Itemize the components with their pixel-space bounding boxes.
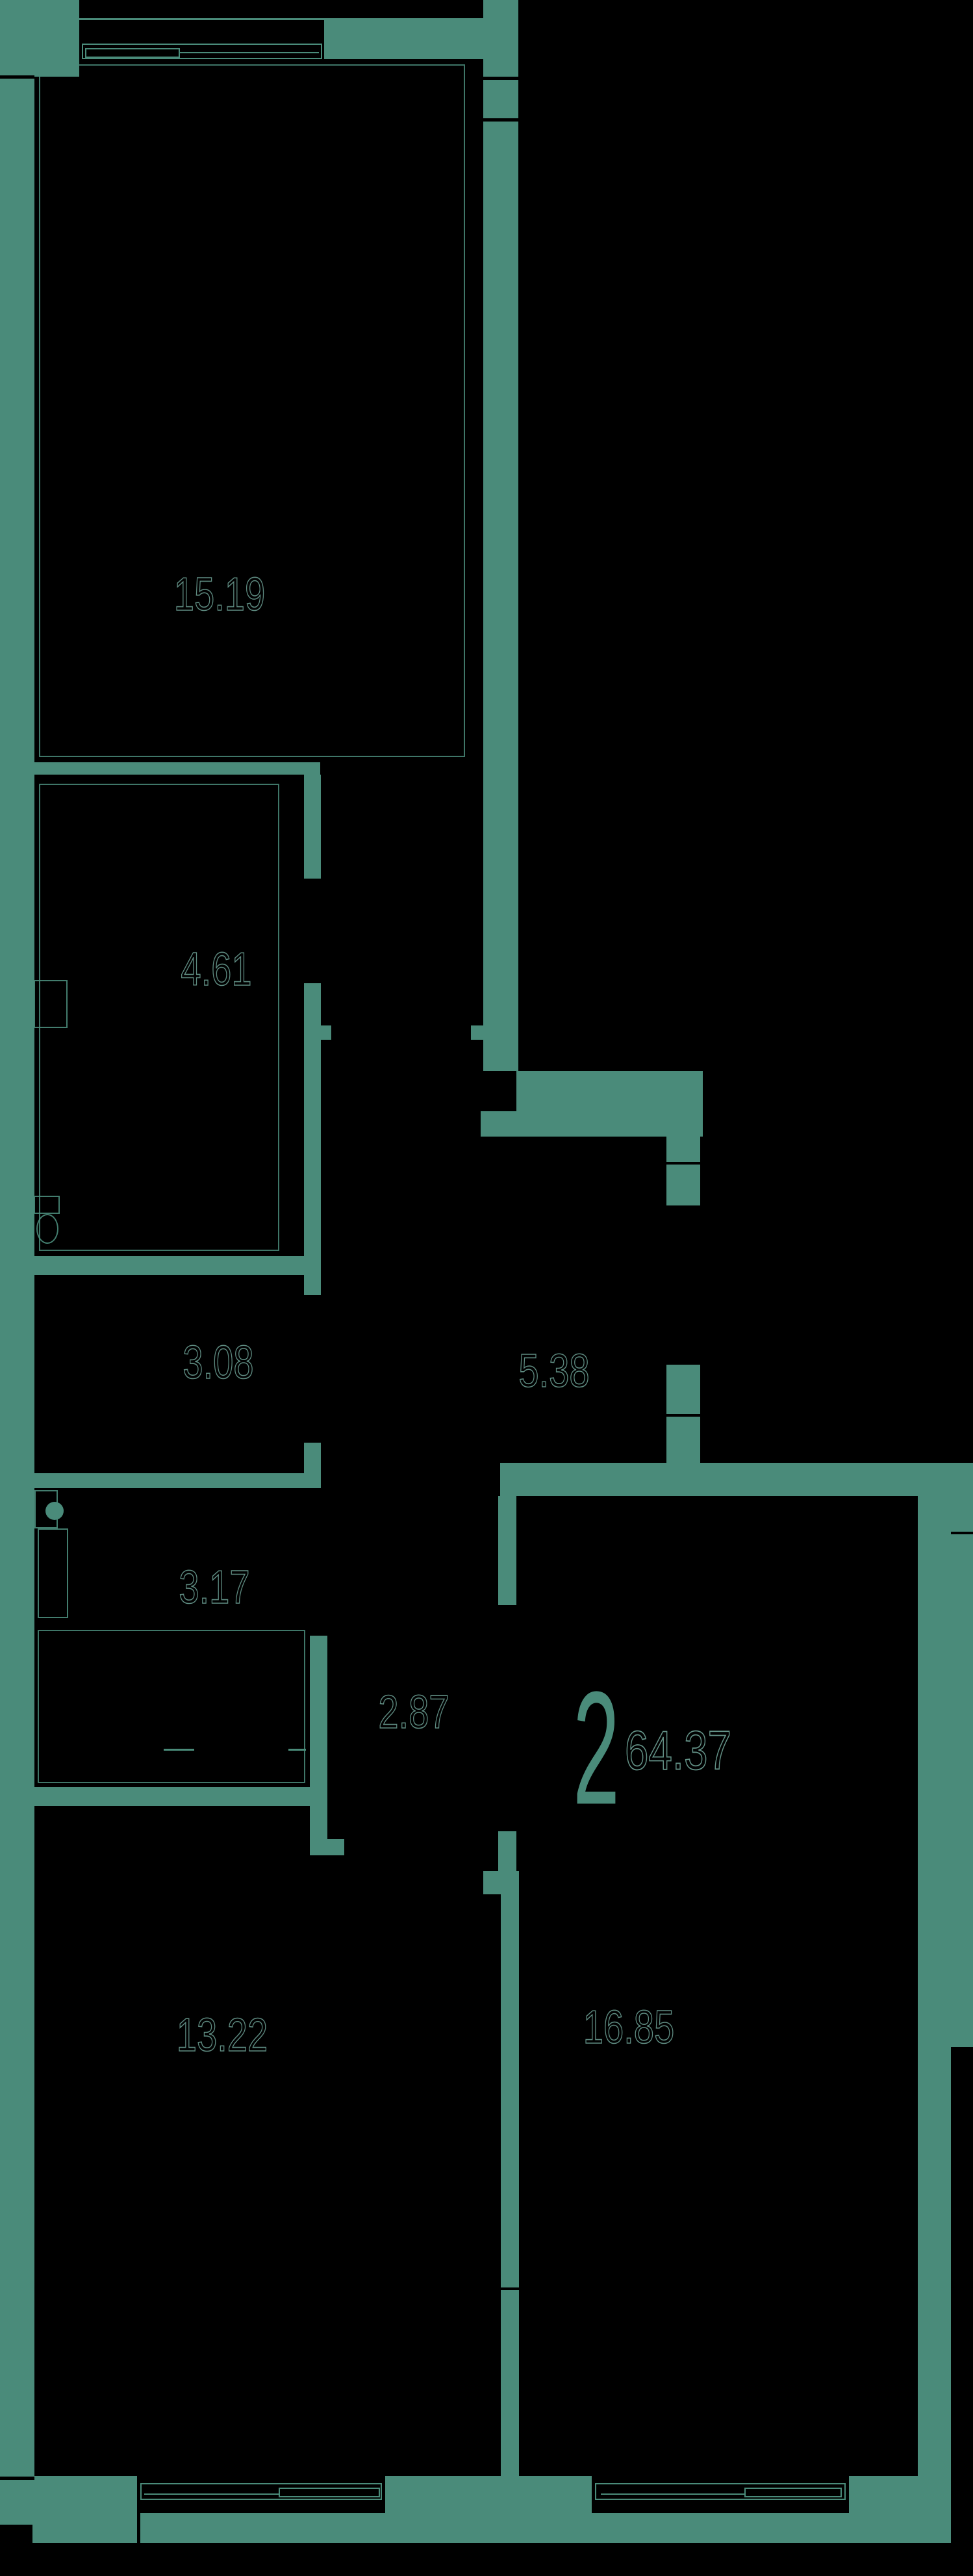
wall-storage-right-upper <box>304 1275 321 1295</box>
wall-entry-upper <box>666 1137 700 1205</box>
window-sill-right <box>592 2513 849 2543</box>
door-jamb-hall-right <box>471 1025 483 1040</box>
wall-break-tick-bedroomwall <box>501 2287 519 2290</box>
wall-break-tick-top-right-2 <box>483 118 518 122</box>
room-area-label-wc: 3.17 <box>179 1561 249 1614</box>
wall-livingroom-top <box>500 1463 918 1496</box>
wall-bottom-segment-mid <box>385 2476 592 2543</box>
wall-hall-band-lower <box>481 1111 703 1137</box>
door-dash-right <box>288 1749 306 1751</box>
room-area-label-storage: 3.08 <box>183 1336 253 1389</box>
wall-livingroom-left-upper <box>498 1496 516 1605</box>
room-area-label-top: 15.19 <box>174 568 266 621</box>
wall-between-bedrooms <box>501 1894 519 2543</box>
wall-break-tick-top-left <box>0 75 34 79</box>
wall-break-tick-bottom-left <box>0 2477 34 2480</box>
toilet-bowl-symbol <box>36 1214 58 1244</box>
room-area-label-living: 16.85 <box>583 2001 675 2054</box>
wall-room15-bottom <box>32 762 320 775</box>
window-bottom-left-mid-line <box>144 2493 279 2495</box>
window-top-sash <box>85 48 180 58</box>
window-top-mid-line <box>180 52 319 53</box>
door-jamb-bedroom <box>327 1839 344 1855</box>
wall-bathroom-bottom <box>32 1256 321 1275</box>
shower-symbol <box>38 1528 68 1618</box>
room-area-label-bathroom: 4.61 <box>181 943 251 996</box>
door-jamb-hall-left <box>320 1025 331 1040</box>
wall-right-outer-upper <box>918 1463 973 2047</box>
wall-hall-band-upper <box>516 1071 703 1111</box>
wall-bottom-segment-left <box>32 2476 137 2543</box>
wall-storage-bottom <box>32 1473 307 1488</box>
room-area-label-bedroom: 13.22 <box>177 2009 268 2062</box>
toilet-tank-symbol <box>34 1196 60 1214</box>
wall-break-tick-top-right-1 <box>483 77 518 80</box>
wall-bathroom-right-upper <box>304 775 321 879</box>
wall-left-outer <box>0 0 34 2525</box>
room-area-label-hallway: 5.38 <box>518 1345 589 1398</box>
room-outline-bathroom <box>39 784 279 1251</box>
wall-right-upper-column <box>483 0 518 1071</box>
window-bottom-right-mid-line <box>601 2493 744 2495</box>
unit-rooms-count: 2 <box>573 1655 620 1841</box>
floor-plan: 15.19 4.61 5.38 3.08 3.17 2.87 13.22 16.… <box>0 0 973 2576</box>
wall-top-middle <box>324 18 485 59</box>
wall-bottom-segment-right <box>849 2476 951 2543</box>
window-top-outer-line <box>79 18 324 20</box>
room-outline-wc <box>38 1630 305 1783</box>
unit-total-area: 64.37 <box>625 1719 731 1783</box>
wall-break-tick-entry-2 <box>666 1414 700 1417</box>
wall-bathroom-right-lower <box>304 983 321 1275</box>
window-bottom-right-sash <box>744 2488 842 2497</box>
door-dash-left <box>164 1749 194 1751</box>
wall-wc-right <box>310 1636 327 1806</box>
room-area-label-corridor: 2.87 <box>378 1686 449 1739</box>
wall-corridor-left-lower <box>310 1806 327 1855</box>
wall-break-tick-entry-1 <box>666 1162 700 1165</box>
washing-machine-symbol <box>34 980 68 1028</box>
wall-right-outer-lower <box>918 2047 951 2543</box>
sink-symbol <box>45 1502 64 1520</box>
wall-break-tick-right <box>951 1532 973 1534</box>
window-bottom-left-sash <box>279 2488 380 2497</box>
window-sill-left <box>140 2513 385 2543</box>
wall-wc-bottom <box>34 1787 327 1806</box>
room-outline-top <box>39 64 465 757</box>
wall-livingroom-left-head <box>483 1871 519 1894</box>
